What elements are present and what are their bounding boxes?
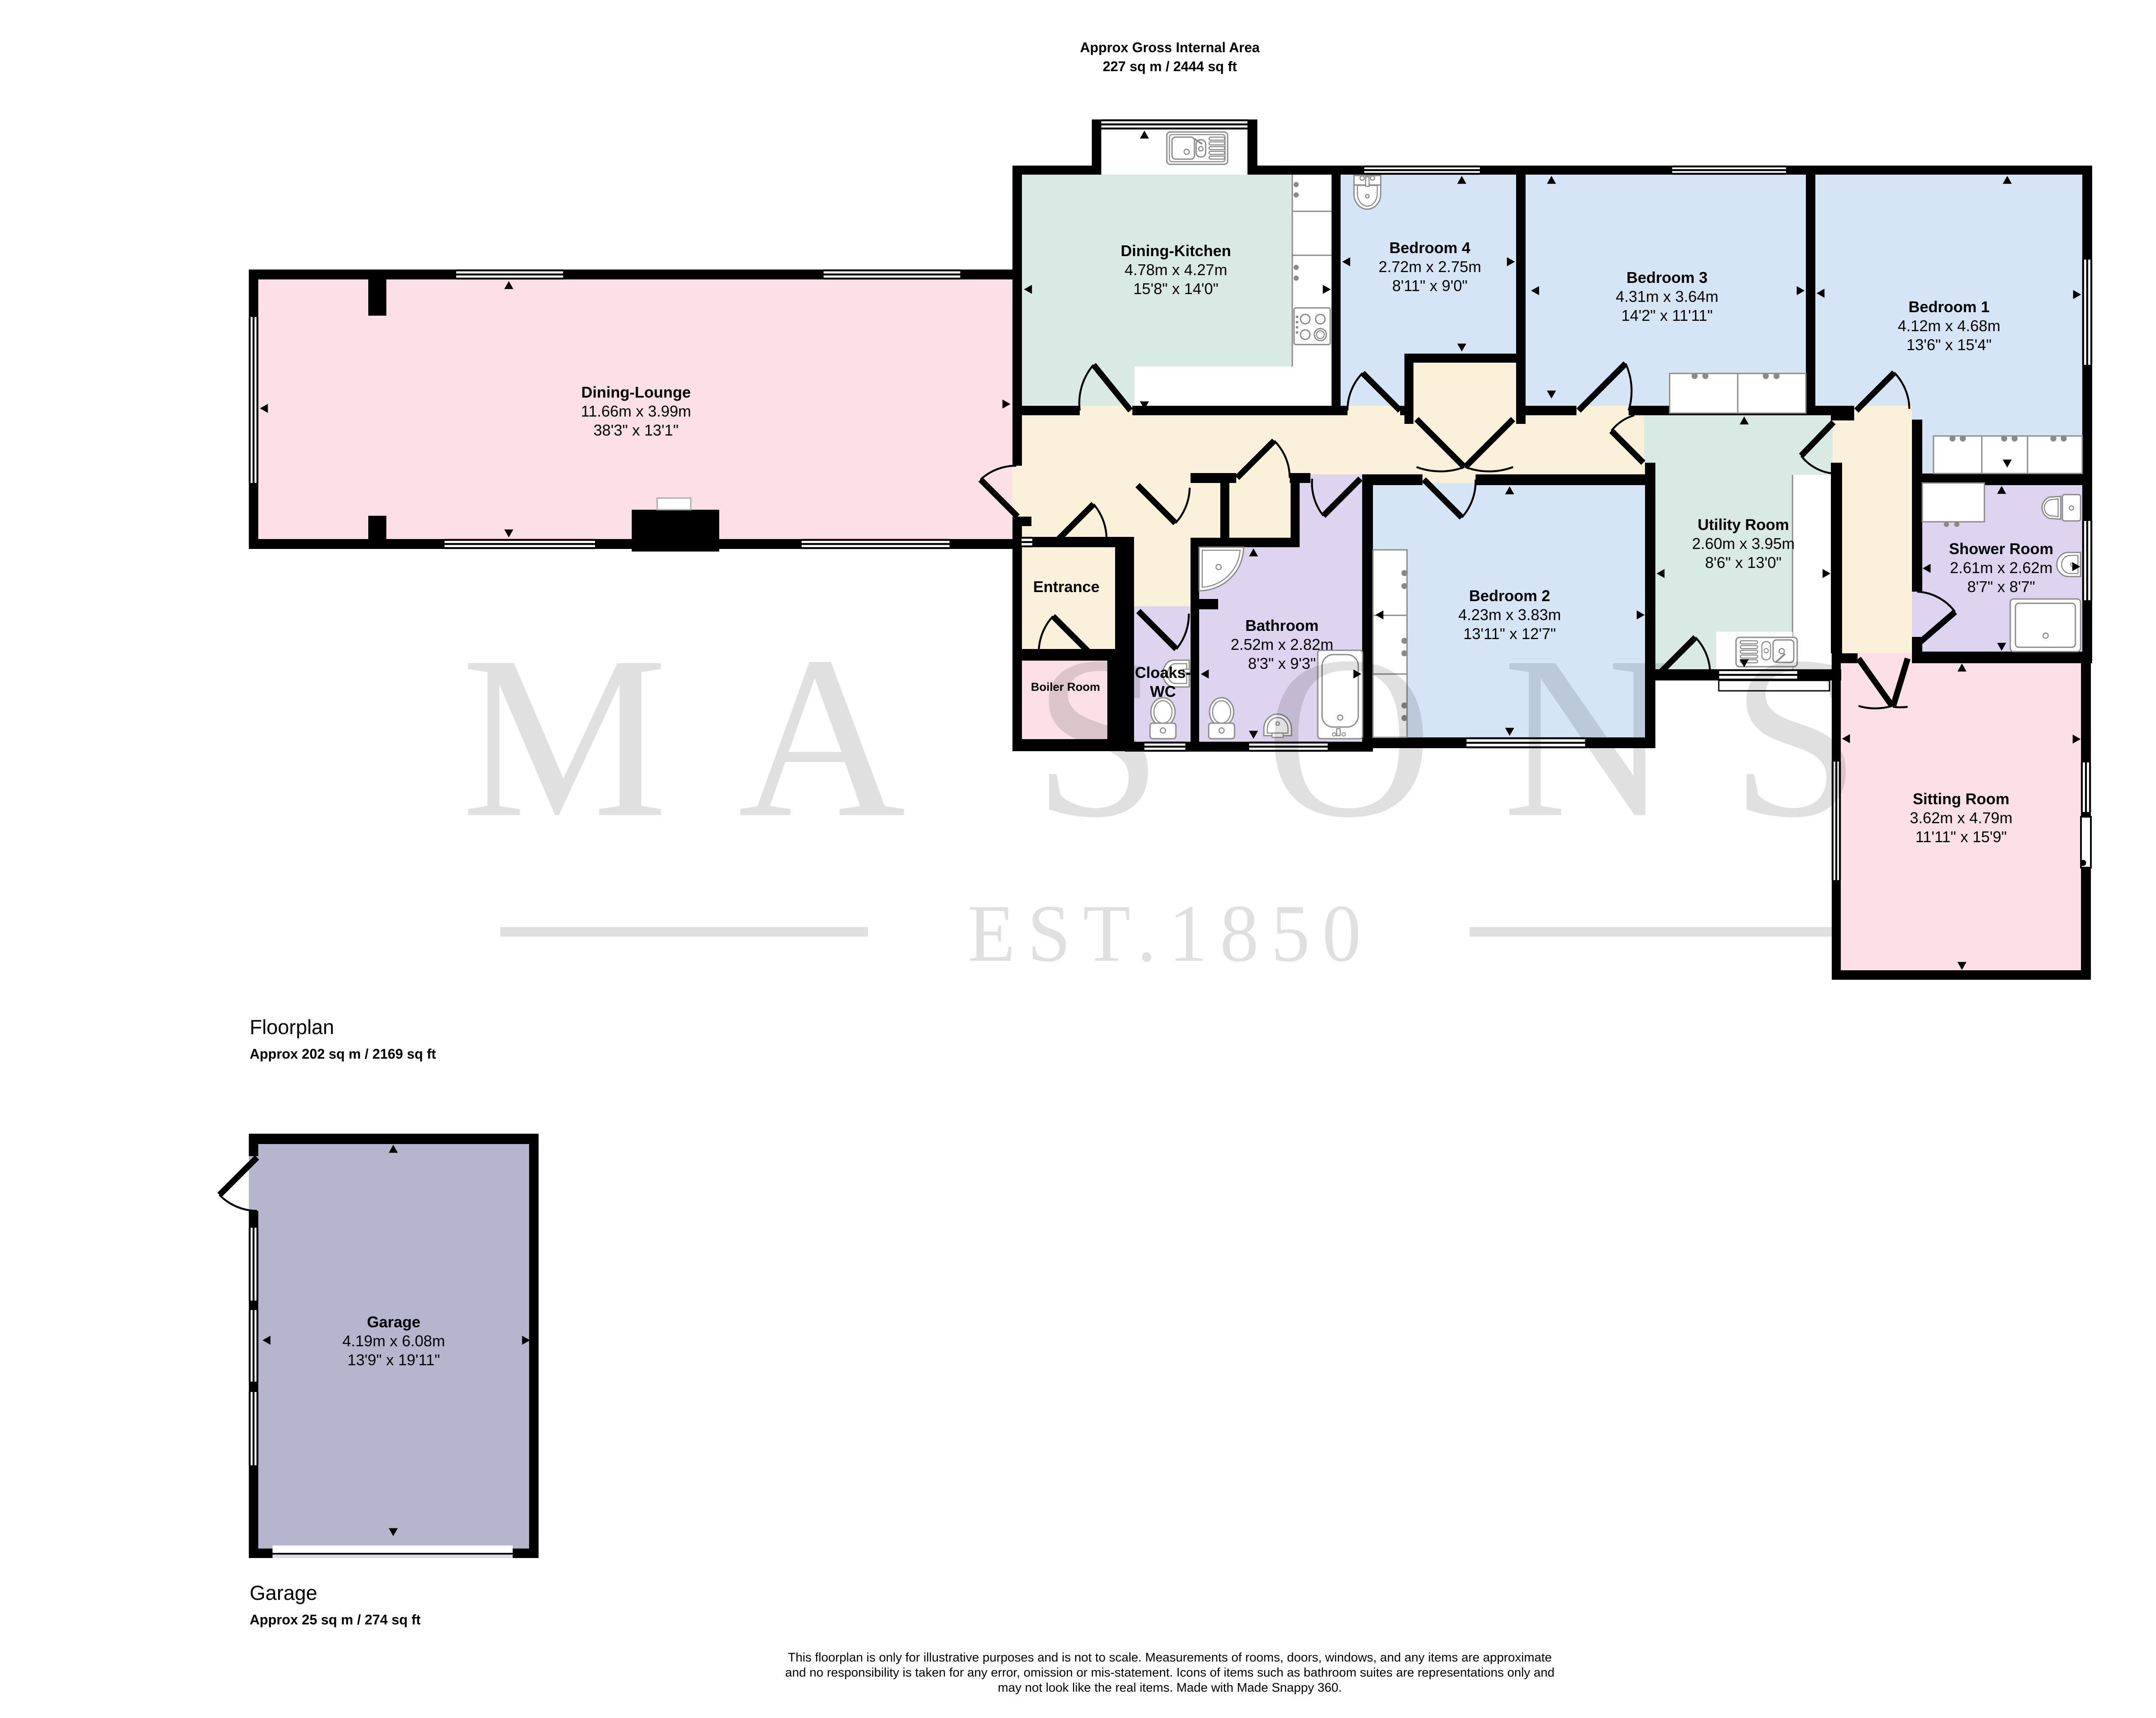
svg-text:S: S	[1033, 609, 1162, 865]
svg-text:4.19m x 6.08m: 4.19m x 6.08m	[342, 1332, 445, 1350]
svg-text:S: S	[1731, 609, 1860, 865]
svg-text:38'3" x 13'1": 38'3" x 13'1"	[593, 421, 678, 439]
svg-text:A: A	[738, 609, 906, 865]
svg-text:8'6" x 13'0": 8'6" x 13'0"	[1705, 554, 1781, 571]
svg-text:Utility Room: Utility Room	[1698, 516, 1789, 533]
svg-text:Approx 202 sq m / 2169 sq ft: Approx 202 sq m / 2169 sq ft	[250, 1046, 436, 1062]
svg-text:Dining-Kitchen: Dining-Kitchen	[1121, 242, 1231, 260]
svg-text:M: M	[461, 609, 667, 865]
svg-text:4.31m x 3.64m: 4.31m x 3.64m	[1616, 288, 1718, 305]
svg-text:This floorplan is only for ill: This floorplan is only for illustrative …	[788, 1651, 1551, 1665]
svg-text:Shower Room: Shower Room	[1949, 540, 2053, 558]
svg-text:227 sq m / 2444 sq ft: 227 sq m / 2444 sq ft	[1103, 59, 1237, 74]
svg-text:EST.1850: EST.1850	[968, 888, 1373, 979]
svg-text:Garage: Garage	[367, 1313, 420, 1331]
svg-text:N: N	[1503, 609, 1670, 865]
svg-text:13'6" x 15'4": 13'6" x 15'4"	[1906, 336, 1991, 354]
svg-text:Sitting Room: Sitting Room	[1913, 790, 2009, 808]
svg-text:2.60m x 3.95m: 2.60m x 3.95m	[1692, 535, 1795, 552]
svg-text:may not look like the real ite: may not look like the real items. Made w…	[998, 1681, 1342, 1695]
svg-text:Entrance: Entrance	[1033, 578, 1100, 596]
svg-text:8'11" x 9'0": 8'11" x 9'0"	[1392, 277, 1468, 295]
svg-text:11.66m x 3.99m: 11.66m x 3.99m	[581, 402, 691, 420]
svg-text:4.78m x 4.27m: 4.78m x 4.27m	[1125, 261, 1227, 279]
svg-text:2.72m x 2.75m: 2.72m x 2.75m	[1379, 258, 1481, 276]
svg-text:3.62m x 4.79m: 3.62m x 4.79m	[1910, 809, 2012, 827]
svg-text:11'11" x 15'9": 11'11" x 15'9"	[1915, 828, 2007, 846]
svg-text:4.12m x 4.68m: 4.12m x 4.68m	[1898, 317, 2000, 335]
svg-text:Bedroom 2: Bedroom 2	[1469, 587, 1550, 605]
svg-text:Bedroom 1: Bedroom 1	[1908, 298, 1990, 316]
svg-text:15'8" x 14'0": 15'8" x 14'0"	[1133, 280, 1218, 298]
svg-text:2.61m x 2.62m: 2.61m x 2.62m	[1950, 559, 2053, 577]
svg-text:8'7" x 8'7": 8'7" x 8'7"	[1967, 578, 2035, 596]
svg-text:and no responsibility is taken: and no responsibility is taken for any e…	[785, 1666, 1554, 1680]
svg-text:14'2" x 11'11": 14'2" x 11'11"	[1621, 307, 1713, 324]
svg-text:Bedroom 4: Bedroom 4	[1389, 239, 1470, 257]
svg-text:13'9" x 19'11": 13'9" x 19'11"	[348, 1351, 440, 1369]
svg-text:Approx 25 sq m / 274 sq ft: Approx 25 sq m / 274 sq ft	[250, 1612, 421, 1627]
svg-text:Floorplan: Floorplan	[250, 1016, 334, 1038]
svg-text:Dining-Lounge: Dining-Lounge	[581, 383, 691, 401]
svg-text:Approx Gross Internal Area: Approx Gross Internal Area	[1080, 40, 1260, 55]
svg-text:Bedroom 3: Bedroom 3	[1626, 269, 1708, 286]
svg-text:O: O	[1265, 609, 1433, 865]
svg-text:Garage: Garage	[250, 1581, 317, 1604]
